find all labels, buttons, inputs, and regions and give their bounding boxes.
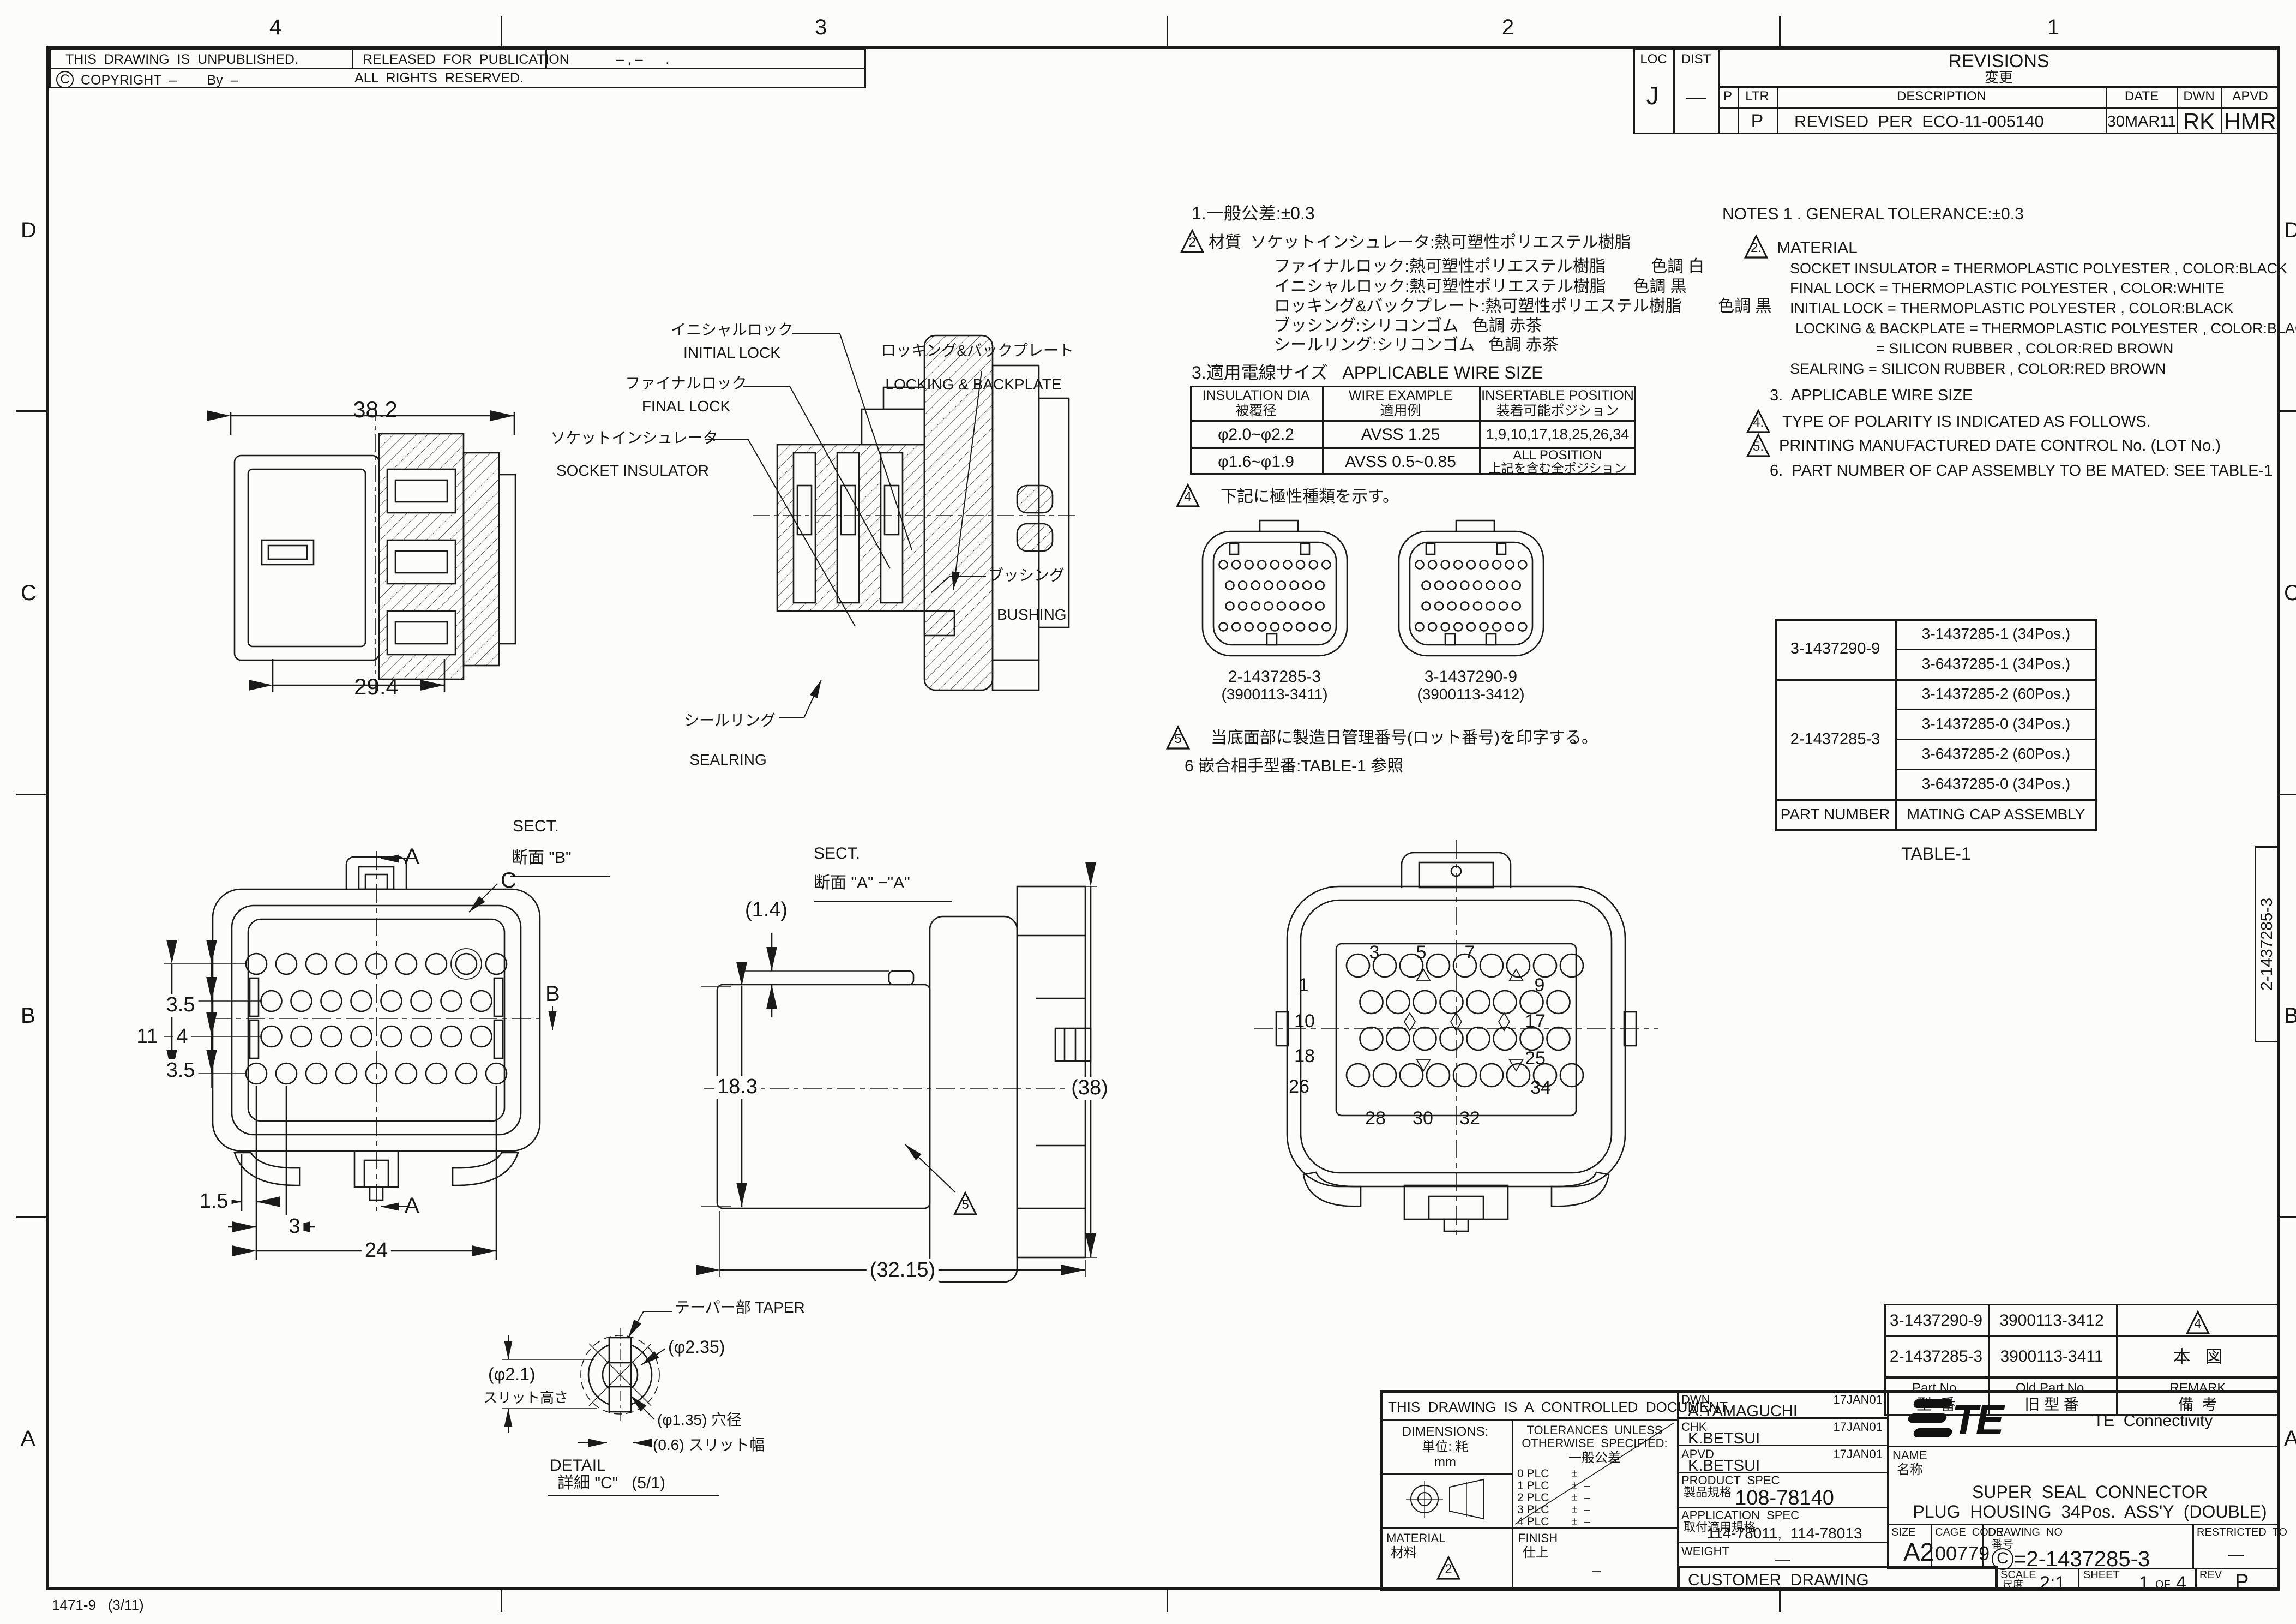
drawing-sheet: 4 3 2 1 D C B A D C B A 1471-9 (3/11) TH… bbox=[0, 0, 2296, 1624]
leader-overlay bbox=[0, 0, 2296, 1624]
